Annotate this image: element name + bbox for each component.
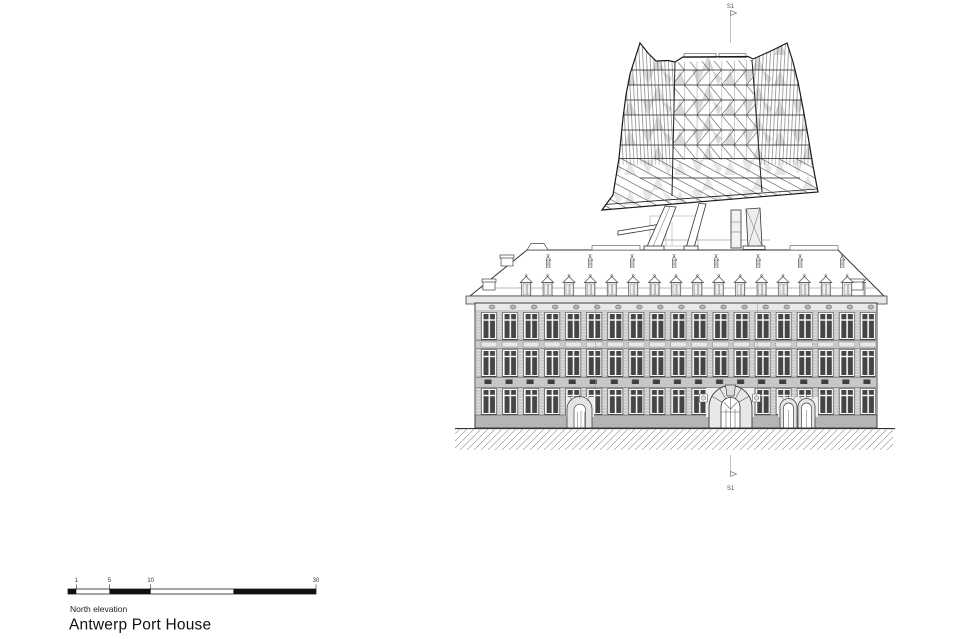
column-foot bbox=[743, 246, 765, 250]
string-course-upper bbox=[476, 340, 876, 349]
ground-hatch bbox=[455, 430, 893, 451]
string-course-lower bbox=[476, 377, 876, 388]
support-structure bbox=[618, 204, 770, 251]
scale-segment bbox=[233, 589, 316, 594]
drawing-sheet: S1 bbox=[0, 0, 960, 639]
rosette-row bbox=[476, 303, 876, 311]
strut-foot bbox=[684, 246, 698, 250]
ridge-curb-left bbox=[592, 246, 640, 251]
window-row-upper bbox=[476, 312, 876, 340]
section-label-bottom: S1 bbox=[727, 486, 735, 492]
roof-finial-row bbox=[544, 254, 850, 268]
ridge-curb-right bbox=[790, 246, 838, 251]
title-block: North elevation Antwerp Port House bbox=[69, 604, 211, 634]
side-door-left bbox=[566, 395, 594, 429]
facade bbox=[475, 303, 877, 428]
section-label-top: S1 bbox=[727, 4, 735, 10]
glass-side-left bbox=[598, 40, 678, 165]
keystone bbox=[726, 385, 736, 396]
scale-bar: 1 5 10 30 bbox=[68, 578, 320, 594]
glass-lower-band bbox=[598, 158, 822, 212]
scale-label-5: 5 bbox=[108, 578, 112, 584]
section-flag-icon bbox=[731, 472, 737, 477]
core-shaft bbox=[731, 210, 741, 248]
section-marker-top: S1 bbox=[727, 4, 737, 43]
ridge-skylight bbox=[527, 244, 548, 251]
main-entrance bbox=[700, 385, 761, 428]
scale-label-1: 1 bbox=[75, 578, 79, 584]
elevation-drawing: S1 bbox=[0, 0, 960, 639]
drawing-title: Antwerp Port House bbox=[69, 617, 211, 634]
walkway bbox=[618, 225, 658, 236]
strut bbox=[686, 204, 706, 249]
scale-label-10: 10 bbox=[147, 578, 154, 584]
scale-segment bbox=[68, 589, 76, 594]
drawing-subtitle: North elevation bbox=[70, 604, 127, 614]
section-marker-bottom: S1 bbox=[727, 455, 737, 492]
glass-side-right bbox=[748, 40, 822, 165]
strut-foot bbox=[644, 246, 664, 250]
glass-extension bbox=[598, 40, 822, 212]
window-row-middle bbox=[476, 349, 876, 377]
roof-dormer-row bbox=[512, 274, 866, 297]
roof bbox=[470, 244, 884, 298]
scale-segment bbox=[109, 589, 150, 594]
ground bbox=[455, 429, 895, 450]
side-arches-right bbox=[778, 395, 818, 429]
scale-ticks bbox=[76, 585, 316, 590]
section-flag-icon bbox=[731, 11, 737, 16]
scale-label-30: 30 bbox=[313, 578, 320, 584]
